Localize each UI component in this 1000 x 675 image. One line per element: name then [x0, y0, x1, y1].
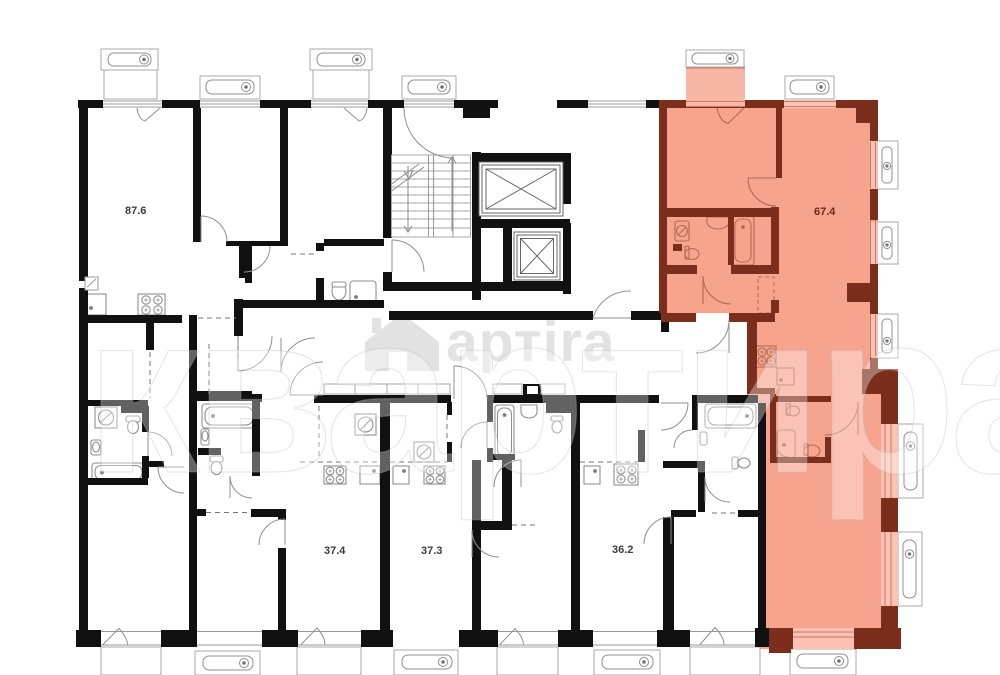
svg-text:37.4: 37.4: [324, 545, 346, 557]
svg-text:87.6: 87.6: [125, 205, 146, 217]
svg-text:67.4: 67.4: [814, 206, 836, 218]
svg-text:36.2: 36.2: [612, 544, 633, 556]
svg-text:квартира: квартира: [85, 264, 1000, 521]
svg-text:37.3: 37.3: [421, 545, 442, 557]
